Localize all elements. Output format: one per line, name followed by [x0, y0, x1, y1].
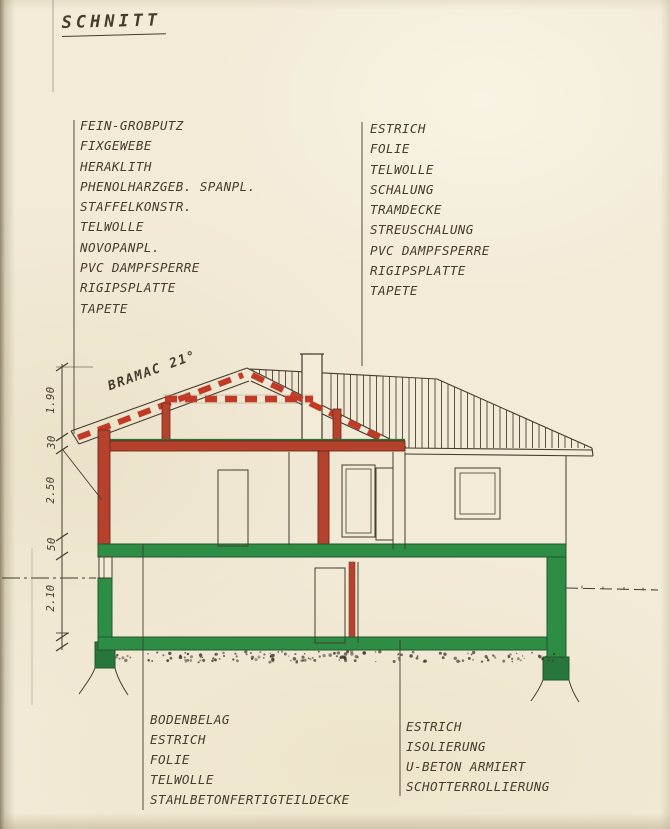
dimension-label-ground-floor: 2.50 — [45, 468, 57, 512]
layer-label: U-BETON ARMIERT — [406, 757, 550, 777]
layer-label: TELWOLLE — [80, 217, 256, 237]
layer-label: TELWOLLE — [370, 160, 490, 180]
layer-label: PVC DAMPFSPERRE — [80, 258, 256, 278]
layer-label: STAHLBETONFERTIGTEILDECKE — [150, 790, 350, 810]
layer-label: FEIN-GROBPUTZ — [80, 116, 256, 136]
layer-label: FOLIE — [150, 750, 350, 770]
green-structure — [95, 544, 569, 680]
layer-label: TAPETE — [370, 281, 490, 301]
layer-label: TAPETE — [80, 299, 256, 319]
layer-label: SCHALUNG — [370, 180, 490, 200]
layer-label: SCHOTTERROLLIERUNG — [406, 777, 550, 797]
dimension-label-roof: 1.90 — [45, 378, 57, 422]
layer-label: FOLIE — [370, 139, 490, 159]
layer-label: TELWOLLE — [150, 770, 350, 790]
floor-layers-list: BODENBELAG ESTRICH FOLIE TELWOLLE STAHLB… — [150, 710, 350, 730]
excavation-lines — [79, 668, 579, 702]
foundation-layers-list: ESTRICH ISOLIERUNG U-BETON ARMIERT SCHOT… — [406, 717, 550, 797]
layer-label: ESTRICH — [370, 119, 490, 139]
layer-label: STAFFELKONSTR. — [80, 197, 256, 217]
dimension-label-attic-floor: 30 — [46, 420, 58, 464]
layer-label: ISOLIERUNG — [406, 737, 550, 757]
layer-label: PHENOLHARZGEB. SPANPL. — [80, 177, 256, 197]
dimension-label-basement: 2.10 — [45, 576, 57, 620]
dimension-chain — [56, 363, 102, 651]
scanned-section-drawing: { "title": { "text": "SCHNITT" }, "roof_… — [0, 0, 670, 829]
dimension-label-slab: 50 — [46, 522, 58, 566]
layer-label: PVC DAMPFSPERRE — [370, 241, 490, 261]
wall-layers-list: FEIN-GROBPUTZ FIXGEWEBE HERAKLITH PHENOL… — [80, 116, 256, 319]
layer-label: RIGIPSPLATTE — [80, 278, 256, 298]
layer-label: NOVOPANPL. — [80, 238, 256, 258]
layer-label: BODENBELAG — [150, 710, 350, 730]
layer-label: RIGIPSPLATTE — [370, 261, 490, 281]
ceiling-layers-list: ESTRICH FOLIE TELWOLLE SCHALUNG TRAMDECK… — [370, 119, 490, 302]
plinth-outline — [99, 557, 112, 578]
layer-label: ESTRICH — [406, 717, 550, 737]
layer-label: STREUSCHALUNG — [370, 220, 490, 240]
page-title: SCHNITT — [61, 10, 165, 37]
layer-label: FIXGEWEBE — [80, 136, 256, 156]
layer-label: ESTRICH — [150, 730, 350, 750]
layer-label: HERAKLITH — [80, 157, 256, 177]
gravel-texture — [115, 650, 555, 664]
layer-label: TRAMDECKE — [370, 200, 490, 220]
